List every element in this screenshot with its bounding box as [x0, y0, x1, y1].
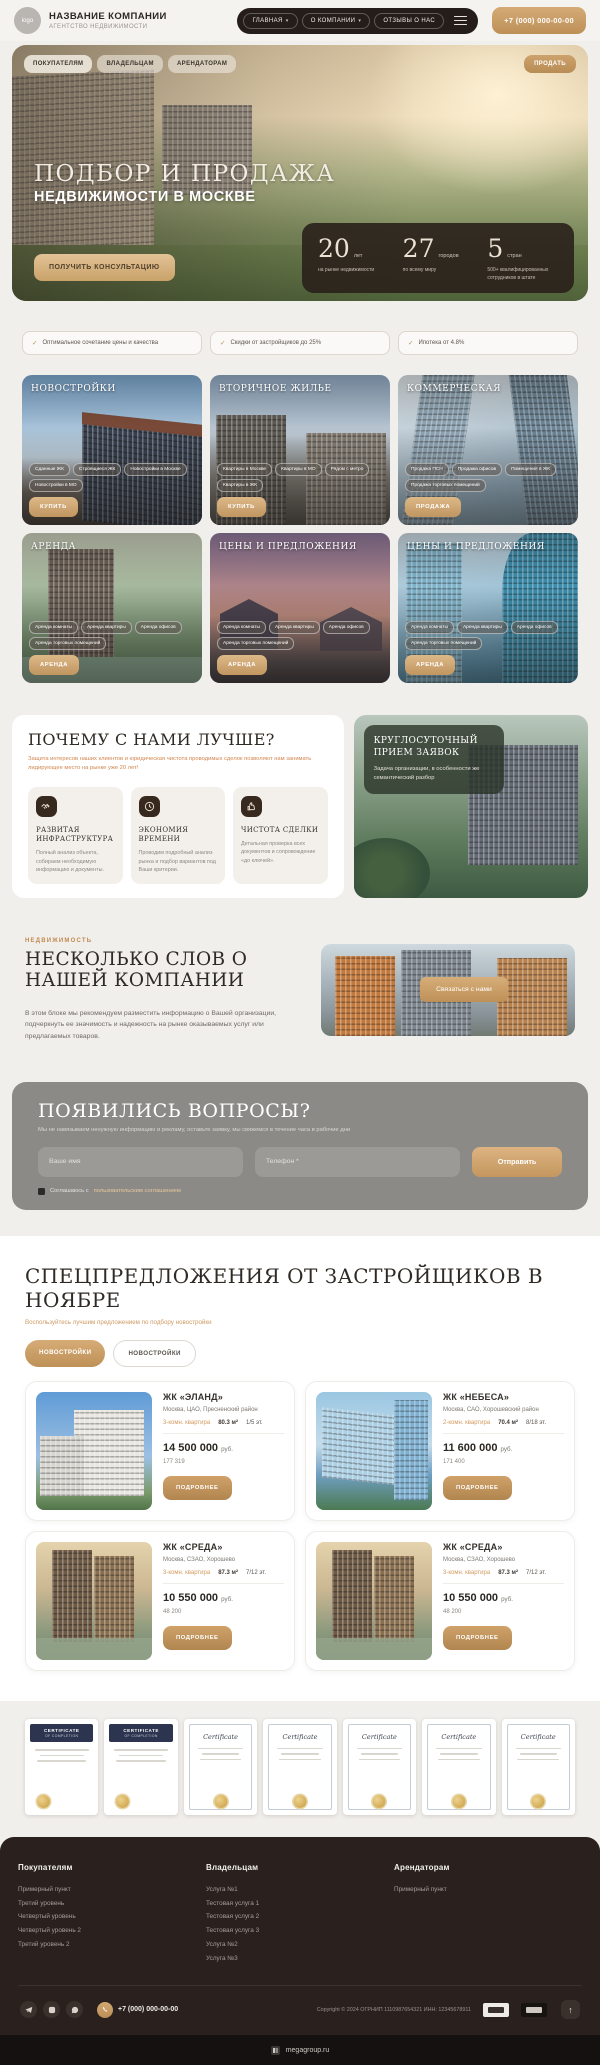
- consent-row: Соглашаюсь с пользовательским соглашение…: [38, 1188, 562, 1195]
- category-action-button[interactable]: КУПИТЬ: [29, 497, 78, 517]
- offer-details-button[interactable]: ПОДРОБНЕЕ: [443, 1476, 512, 1500]
- submit-button[interactable]: Отправить: [472, 1147, 562, 1177]
- category-tags: Аренда комнаты Аренда квартиры Аренда оф…: [405, 621, 571, 650]
- offers-title: СПЕЦПРЕДЛОЖЕНИЯ ОТ ЗАСТРОЙЩИКОВ В НОЯБРЕ: [25, 1264, 575, 1312]
- company-block: НАЗВАНИЕ КОМПАНИИ АГЕНТСТВО НЕДВИЖИМОСТИ: [49, 11, 167, 30]
- usp-badge: ✓Скидки от застройщиков до 25%: [210, 331, 390, 355]
- stat-value: 5: [487, 236, 503, 261]
- about-section: НЕДВИЖИМОСТЬ НЕСКОЛЬКО СЛОВ О НАШЕЙ КОМП…: [25, 938, 575, 1042]
- offer-body: ЖК «НЕБЕСА» Москва, САО, Хорошевский рай…: [443, 1392, 564, 1510]
- offer-card-nebesa[interactable]: ЖК «НЕБЕСА» Москва, САО, Хорошевский рай…: [305, 1381, 575, 1521]
- offer-price: 11 600 000 руб.: [443, 1442, 564, 1454]
- offer-area: 87.3 м²: [218, 1570, 238, 1576]
- certificate-title: Certificate: [273, 1733, 326, 1741]
- category-tag[interactable]: Продажа офисов: [452, 463, 502, 476]
- offer-floor: 7/12 эт.: [246, 1570, 266, 1576]
- category-tag[interactable]: Аренда комнаты: [405, 621, 454, 634]
- feature-text: Детальная проверка всех документов и соп…: [241, 840, 320, 865]
- category-tag[interactable]: Аренда торговых помещений: [217, 637, 294, 650]
- footer-link[interactable]: Третий уровень 2: [18, 1938, 206, 1952]
- offer-currency: руб.: [501, 1446, 513, 1453]
- category-title: КОММЕРЧЕСКАЯ: [407, 384, 570, 394]
- stat-unit: стран: [507, 253, 521, 259]
- builder-brand[interactable]: megagroup.ru: [286, 2047, 330, 2054]
- footer-columns: Покупателям Примерный пункт Третий урове…: [18, 1863, 582, 1966]
- offer-details-button[interactable]: ПОДРОБНЕЕ: [163, 1626, 232, 1650]
- award-badge: [521, 2003, 547, 2017]
- check-icon: ✓: [220, 339, 225, 347]
- subnav-tenants[interactable]: АРЕНДАТОРАМ: [168, 55, 236, 73]
- category-tag[interactable]: Аренда квартиры: [457, 621, 508, 634]
- offer-image: [316, 1392, 432, 1510]
- feature-text: Полный анализ объекта, собираем необходи…: [36, 849, 115, 874]
- telegram-icon[interactable]: [20, 2001, 37, 2018]
- gold-seal-icon: [452, 1795, 465, 1808]
- footer-link[interactable]: Примерный пункт: [394, 1883, 582, 1897]
- nav-item-home[interactable]: ГЛАВНАЯ▾: [243, 13, 297, 29]
- form-title: ПОЯВИЛИСЬ ВОПРОСЫ?: [38, 1100, 562, 1122]
- about-text-block: НЕДВИЖИМОСТЬ НЕСКОЛЬКО СЛОВ О НАШЕЙ КОМП…: [25, 938, 305, 1042]
- logo-text: logo: [22, 18, 33, 24]
- footer-column-title: Покупателям: [18, 1863, 206, 1872]
- footer-phone[interactable]: +7 (000) 000-00-00: [97, 2002, 178, 2018]
- site-footer: Покупателям Примерный пункт Третий урове…: [0, 1837, 600, 2036]
- promo-text: Задача организации, в особенности же сем…: [374, 765, 495, 783]
- usp-badge-label: Оптимальное сочетание цены и качества: [42, 340, 158, 346]
- category-card-novostroyki[interactable]: НОВОСТРОЙКИ Сданные ЖК Строящиеся ЖК Нов…: [22, 375, 202, 525]
- offer-currency: руб.: [221, 1446, 233, 1453]
- copyright-text: Copyright © 2024 ОГРНИП 1110987654321 ИН…: [317, 2006, 471, 2014]
- handshake-icon: [36, 796, 57, 817]
- certificate-thumbnail[interactable]: CERTIFICATEOF COMPLETION: [25, 1719, 98, 1815]
- certificates-strip: CERTIFICATEOF COMPLETION CERTIFICATEOF C…: [25, 1719, 575, 1815]
- stat-years: 20лет на рынке недвижимости: [318, 236, 389, 282]
- category-tag[interactable]: Аренда офисов: [323, 621, 370, 634]
- chevron-down-icon: ▾: [358, 18, 361, 24]
- footer-link[interactable]: Тестовая услуга 3: [206, 1924, 394, 1938]
- footer-column-tenants: Арендаторам Примерный пункт: [394, 1863, 582, 1966]
- certificate-title: Certificate: [353, 1733, 406, 1741]
- phone-icon: [97, 2002, 113, 2018]
- certificate-title: Certificate: [432, 1733, 485, 1741]
- offer-rooms: 3-комн. квартира: [163, 1570, 210, 1576]
- offers-tabs: НОВОСТРОЙКИ НОВОСТРОЙКИ: [25, 1340, 575, 1367]
- usp-badge: ✓Оптимальное сочетание цены и качества: [22, 331, 202, 355]
- category-tag[interactable]: Аренда офисов: [511, 621, 558, 634]
- category-tags: Продажа ПСН Продажа офисов Помещения в Ж…: [405, 463, 571, 492]
- stat-caption: 500+ квалифицированных сотрудников в шта…: [487, 267, 558, 282]
- footer-bottom-bar: +7 (000) 000-00-00 Copyright © 2024 ОГРН…: [18, 1986, 582, 2035]
- consent-link[interactable]: пользовательским соглашением: [94, 1188, 181, 1194]
- category-tag[interactable]: Рядом с метро: [325, 463, 370, 476]
- thumbs-up-icon: [241, 796, 262, 817]
- tab-novostroyki-active[interactable]: НОВОСТРОЙКИ: [25, 1340, 105, 1367]
- certificate-thumbnail[interactable]: CERTIFICATEOF COMPLETION: [104, 1719, 177, 1815]
- hero-stats-panel: 20лет на рынке недвижимости 27городов по…: [302, 223, 574, 293]
- features: РАЗВИТАЯ ИНФРАСТРУКТУРА Полный анализ об…: [28, 787, 328, 884]
- category-tag[interactable]: Помещения в ЖК: [505, 463, 556, 476]
- main-nav: ГЛАВНАЯ▾ О КОМПАНИИ▾ ОТЗЫВЫ О НАС: [237, 8, 478, 34]
- subnav-buyers[interactable]: ПОКУПАТЕЛЯМ: [24, 55, 92, 73]
- company-tagline: АГЕНТСТВО НЕДВИЖИМОСТИ: [49, 24, 167, 30]
- category-title: ВТОРИЧНОЕ ЖИЛЬЕ: [219, 384, 382, 394]
- category-tag[interactable]: Аренда торговых помещений: [29, 637, 106, 650]
- footer-link[interactable]: Услуга №2: [206, 1938, 394, 1952]
- category-tag[interactable]: Строящиеся ЖК: [73, 463, 121, 476]
- certificate-thumbnail[interactable]: Certificate: [422, 1719, 495, 1815]
- nav-item-label: ГЛАВНАЯ: [252, 18, 282, 24]
- tab-novostroyki[interactable]: НОВОСТРОЙКИ: [113, 1340, 195, 1367]
- category-action-button[interactable]: АРЕНДА: [217, 655, 267, 675]
- offer-price-per-m: 48 200: [443, 1609, 564, 1615]
- category-tag[interactable]: Сданные ЖК: [29, 463, 70, 476]
- gold-seal-icon: [37, 1795, 50, 1808]
- hero-title-line2: НЕДВИЖИМОСТИ В МОСКВЕ: [34, 189, 335, 205]
- certificate-thumbnail[interactable]: Certificate: [502, 1719, 575, 1815]
- offer-name: ЖК «ЭЛАНД»: [163, 1392, 284, 1402]
- offer-price-per-m: 48 200: [163, 1609, 284, 1615]
- certificate-title: Certificate: [194, 1733, 247, 1741]
- nav-item-label: ОТЗЫВЫ О НАС: [383, 18, 435, 24]
- offer-area: 80.3 м²: [218, 1420, 238, 1426]
- footer-link[interactable]: Третий уровень: [18, 1897, 206, 1911]
- logo[interactable]: logo: [14, 7, 41, 34]
- footer-link[interactable]: Примерный пункт: [18, 1883, 206, 1897]
- offer-image: [36, 1392, 152, 1510]
- certificate-thumbnail[interactable]: Certificate: [343, 1719, 416, 1815]
- hero-title-line1: ПОДБОР И ПРОДАЖА: [34, 161, 335, 187]
- category-title: АРЕНДА: [31, 542, 194, 552]
- scroll-to-top-button[interactable]: ↑: [561, 2000, 580, 2019]
- offer-body: ЖК «СРЕДА» Москва, СЗАО, Хорошево 3-комн…: [163, 1542, 284, 1660]
- promo-overlay: КРУГЛОСУТОЧНЫЙ ПРИЕМ ЗАЯВОК Задача орган…: [364, 725, 505, 794]
- about-title: НЕСКОЛЬКО СЛОВ О НАШЕЙ КОМПАНИИ: [25, 949, 305, 993]
- footer-link[interactable]: Тестовая услуга 1: [206, 1897, 394, 1911]
- offers-subtitle: Воспользуйтесь лучшим предложением по по…: [25, 1319, 575, 1326]
- why-title: ПОЧЕМУ С НАМИ ЛУЧШЕ?: [28, 730, 328, 749]
- check-icon: ✓: [32, 339, 37, 347]
- about-paragraph: В этом блоке мы рекомендуем разместить и…: [25, 1008, 291, 1042]
- offer-image: [316, 1542, 432, 1660]
- offer-floor: 1/5 эт.: [246, 1420, 263, 1426]
- feature-title: РАЗВИТАЯ ИНФРАСТРУКТУРА: [36, 826, 115, 845]
- offer-card-sreda-2[interactable]: ЖК «СРЕДА» Москва, СЗАО, Хорошево 3-комн…: [305, 1531, 575, 1671]
- certificate-thumbnail[interactable]: Certificate: [263, 1719, 336, 1815]
- footer-phone-number: +7 (000) 000-00-00: [118, 2006, 178, 2013]
- offer-body: ЖК «СРЕДА» Москва, СЗАО, Хорошево 3-комн…: [443, 1542, 564, 1660]
- offer-card-sreda-1[interactable]: ЖК «СРЕДА» Москва, СЗАО, Хорошево 3-комн…: [25, 1531, 295, 1671]
- category-tag[interactable]: Продажа ПСН: [405, 463, 449, 476]
- gold-seal-icon: [116, 1795, 129, 1808]
- nav-item-label: О КОМПАНИИ: [311, 18, 356, 24]
- category-action-button[interactable]: КУПИТЬ: [217, 497, 266, 517]
- category-title: ЦЕНЫ И ПРЕДЛОЖЕНИЯ: [219, 542, 382, 552]
- offer-floor: 8/18 эт.: [526, 1420, 546, 1426]
- offer-name: ЖК «СРЕДА»: [163, 1542, 284, 1552]
- stat-value: 27: [403, 236, 435, 261]
- whatsapp-icon[interactable]: [66, 2001, 83, 2018]
- sell-button[interactable]: ПРОДАТЬ: [524, 55, 576, 73]
- gold-seal-icon: [293, 1795, 306, 1808]
- footer-column-buyers: Покупателям Примерный пункт Третий урове…: [18, 1863, 206, 1966]
- footer-link[interactable]: Тестовая услуга 2: [206, 1910, 394, 1924]
- footer-column-title: Владельцам: [206, 1863, 394, 1872]
- offer-floor: 7/12 эт.: [526, 1570, 546, 1576]
- category-card-commercial[interactable]: КОММЕРЧЕСКАЯ Продажа ПСН Продажа офисов …: [398, 375, 578, 525]
- footer-link[interactable]: Услуга №1: [206, 1883, 394, 1897]
- footer-link[interactable]: Четвертый уровень: [18, 1910, 206, 1924]
- category-grid: НОВОСТРОЙКИ Сданные ЖК Строящиеся ЖК Нов…: [22, 375, 578, 683]
- offer-price: 14 500 000 руб.: [163, 1442, 284, 1454]
- category-action-button[interactable]: ПРОДАЖА: [405, 497, 461, 517]
- certificate-title: CERTIFICATE: [32, 1728, 91, 1733]
- site-builder-bar: megagroup.ru: [0, 2035, 600, 2065]
- stat-cities: 27городов по всему миру: [403, 236, 474, 282]
- certificate-title: Certificate: [512, 1733, 565, 1741]
- offer-price-per-m: 171 400: [443, 1459, 564, 1465]
- name-input[interactable]: [38, 1147, 243, 1177]
- footer-link[interactable]: Услуга №3: [206, 1952, 394, 1966]
- why-subtitle: Защита интересов наших клиентов и юридич…: [28, 755, 316, 774]
- stat-countries: 5стран 500+ квалифицированных сотруднико…: [487, 236, 558, 282]
- certificate-thumbnail[interactable]: Certificate: [184, 1719, 257, 1815]
- offer-rooms: 2-комн. квартира: [443, 1420, 490, 1426]
- footer-link[interactable]: Четвертый уровень 2: [18, 1924, 206, 1938]
- stat-value: 20: [318, 236, 350, 261]
- why-card: ПОЧЕМУ С НАМИ ЛУЧШЕ? Защита интересов на…: [12, 715, 344, 898]
- usp-badges: ✓Оптимальное сочетание цены и качества ✓…: [22, 331, 578, 355]
- gold-seal-icon: [214, 1795, 227, 1808]
- form-subtitle: Мы не навязываем ненужную информацию и р…: [38, 1127, 562, 1133]
- category-action-button[interactable]: АРЕНДА: [29, 655, 79, 675]
- offer-rooms: 3-комн. квартира: [443, 1570, 490, 1576]
- offer-details-button[interactable]: ПОДРОБНЕЕ: [443, 1626, 512, 1650]
- offer-currency: руб.: [501, 1596, 513, 1603]
- hero-subnav: ПОКУПАТЕЛЯМ ВЛАДЕЛЬЦАМ АРЕНДАТОРАМ ПРОДА…: [24, 55, 576, 73]
- category-card-prices-1[interactable]: ЦЕНЫ И ПРЕДЛОЖЕНИЯ Аренда комнаты Аренда…: [210, 533, 390, 683]
- about-image: Связаться с нами: [321, 944, 575, 1036]
- gold-seal-icon: [373, 1795, 386, 1808]
- category-card-secondary[interactable]: ВТОРИЧНОЕ ЖИЛЬЕ Квартиры в Москве Кварти…: [210, 375, 390, 525]
- category-card-arenda[interactable]: АРЕНДА Аренда комнаты Аренда квартиры Ар…: [22, 533, 202, 683]
- category-tags: Квартиры в Москве Квартиры в МО Рядом с …: [217, 463, 383, 492]
- company-name: НАЗВАНИЕ КОМПАНИИ: [49, 11, 167, 22]
- certificate-subtitle: OF COMPLETION: [32, 1734, 91, 1738]
- subnav-owners[interactable]: ВЛАДЕЛЬЦАМ: [97, 55, 162, 73]
- stat-unit: городов: [438, 253, 458, 259]
- category-tag[interactable]: Квартиры в Москве: [217, 463, 272, 476]
- offer-location: Москва, СЗАО, Хорошево: [163, 1557, 284, 1563]
- offer-name: ЖК «НЕБЕСА»: [443, 1392, 564, 1402]
- category-title: НОВОСТРОЙКИ: [31, 384, 194, 394]
- category-tag[interactable]: Аренда торговых помещений: [405, 637, 482, 650]
- offer-location: Москва, ЦАО, Пресненский район: [163, 1407, 284, 1413]
- offer-specs: 3-комн. квартира 87.3 м² 7/12 эт.: [443, 1570, 564, 1584]
- certificate-title: CERTIFICATE: [111, 1728, 170, 1733]
- category-action-button[interactable]: АРЕНДА: [405, 655, 455, 675]
- why-section: ПОЧЕМУ С НАМИ ЛУЧШЕ? Защита интересов на…: [12, 715, 588, 898]
- feature-clean-deal: ЧИСТОТА СДЕЛКИ Детальная проверка всех д…: [233, 787, 328, 884]
- feature-title: ЧИСТОТА СДЕЛКИ: [241, 826, 320, 835]
- gold-seal-icon: [532, 1795, 545, 1808]
- category-tag[interactable]: Новостройки в Москве: [124, 463, 186, 476]
- offer-image: [36, 1542, 152, 1660]
- site-header: logo НАЗВАНИЕ КОМПАНИИ АГЕНТСТВО НЕДВИЖИ…: [0, 0, 600, 41]
- footer-column-title: Арендаторам: [394, 1863, 582, 1872]
- feature-text: Проводим подробный анализ рынка и подбор…: [139, 849, 218, 874]
- category-card-prices-2[interactable]: ЦЕНЫ И ПРЕДЛОЖЕНИЯ Аренда комнаты Аренда…: [398, 533, 578, 683]
- offer-price: 10 550 000 руб.: [443, 1592, 564, 1604]
- offer-details-button[interactable]: ПОДРОБНЕЕ: [163, 1476, 232, 1500]
- category-tags: Аренда комнаты Аренда квартиры Аренда оф…: [217, 621, 383, 650]
- consultation-button[interactable]: ПОЛУЧИТЬ КОНСУЛЬТАЦИЮ: [34, 254, 175, 281]
- phone-input[interactable]: [255, 1147, 460, 1177]
- check-icon: ✓: [408, 339, 413, 347]
- category-tag[interactable]: Аренда комнаты: [217, 621, 266, 634]
- feature-title: ЭКОНОМИЯ ВРЕМЕНИ: [139, 826, 218, 845]
- stat-caption: на рынке недвижимости: [318, 267, 389, 275]
- offer-price-per-m: 177 319: [163, 1459, 284, 1465]
- nav-item-about[interactable]: О КОМПАНИИ▾: [302, 13, 371, 29]
- nav-item-reviews[interactable]: ОТЗЫВЫ О НАС: [374, 13, 444, 29]
- category-tag[interactable]: Продажа торговых помещений: [405, 479, 486, 492]
- stat-unit: лет: [354, 253, 363, 259]
- offers-section: СПЕЦПРЕДЛОЖЕНИЯ ОТ ЗАСТРОЙЩИКОВ В НОЯБРЕ…: [0, 1236, 600, 1701]
- questions-form: ПОЯВИЛИСЬ ВОПРОСЫ? Мы не навязываем нену…: [12, 1082, 588, 1210]
- offer-specs: 3-комн. квартира 87.3 м² 7/12 эт.: [163, 1570, 284, 1584]
- promo-image-card: КРУГЛОСУТОЧНЫЙ ПРИЕМ ЗАЯВОК Задача орган…: [354, 715, 588, 898]
- feature-infrastructure: РАЗВИТАЯ ИНФРАСТРУКТУРА Полный анализ об…: [28, 787, 123, 884]
- hero-title: ПОДБОР И ПРОДАЖА НЕДВИЖИМОСТИ В МОСКВЕ: [34, 161, 335, 205]
- certificate-subtitle: OF COMPLETION: [111, 1734, 170, 1738]
- category-title: ЦЕНЫ И ПРЕДЛОЖЕНИЯ: [407, 542, 570, 552]
- hero-banner: ПОКУПАТЕЛЯМ ВЛАДЕЛЬЦАМ АРЕНДАТОРАМ ПРОДА…: [12, 45, 588, 301]
- about-eyebrow: НЕДВИЖИМОСТЬ: [25, 938, 305, 944]
- offer-name: ЖК «СРЕДА»: [443, 1542, 564, 1552]
- category-tag[interactable]: Аренда комнаты: [29, 621, 78, 634]
- offer-currency: руб.: [221, 1596, 233, 1603]
- category-tag[interactable]: Аренда квартиры: [269, 621, 320, 634]
- menu-icon[interactable]: [454, 16, 467, 25]
- usp-badge-label: Скидки от застройщиков до 25%: [230, 340, 321, 346]
- offer-card-eland[interactable]: ЖК «ЭЛАНД» Москва, ЦАО, Пресненский райо…: [25, 1381, 295, 1521]
- usp-badge: ✓Ипотека от 4.8%: [398, 331, 578, 355]
- promo-title: КРУГЛОСУТОЧНЫЙ ПРИЕМ ЗАЯВОК: [374, 736, 495, 759]
- feature-time: ЭКОНОМИЯ ВРЕМЕНИ Проводим подробный анал…: [131, 787, 226, 884]
- offer-location: Москва, СЗАО, Хорошево: [443, 1557, 564, 1563]
- header-phone-button[interactable]: +7 (000) 000-00-00: [492, 7, 586, 34]
- instagram-icon[interactable]: [43, 2001, 60, 2018]
- category-tag[interactable]: Квартиры в МО: [275, 463, 321, 476]
- footer-column-owners: Владельцам Услуга №1 Тестовая услуга 1 Т…: [206, 1863, 394, 1966]
- offer-body: ЖК «ЭЛАНД» Москва, ЦАО, Пресненский райо…: [163, 1392, 284, 1510]
- offer-rooms: 3-комн. квартира: [163, 1420, 210, 1426]
- chevron-down-icon: ▾: [286, 18, 289, 24]
- form-row: Отправить: [38, 1147, 562, 1177]
- category-tags: Аренда комнаты Аренда квартиры Аренда оф…: [29, 621, 195, 650]
- category-tag[interactable]: Аренда офисов: [135, 621, 182, 634]
- consent-text: Соглашаюсь с: [50, 1188, 89, 1194]
- offer-price: 10 550 000 руб.: [163, 1592, 284, 1604]
- stat-caption: по всему миру: [403, 267, 474, 275]
- offer-area: 70.4 м²: [498, 1420, 518, 1426]
- usp-badge-label: Ипотека от 4.8%: [418, 340, 464, 346]
- offers-grid: ЖК «ЭЛАНД» Москва, ЦАО, Пресненский райо…: [25, 1381, 575, 1671]
- builder-logo-icon: [271, 2046, 280, 2055]
- category-tag[interactable]: Квартиры в ЖК: [217, 479, 263, 492]
- offer-location: Москва, САО, Хорошевский район: [443, 1407, 564, 1413]
- category-tags: Сданные ЖК Строящиеся ЖК Новостройки в М…: [29, 463, 195, 492]
- consent-checkbox[interactable]: [38, 1188, 45, 1195]
- clock-icon: [139, 796, 160, 817]
- offer-specs: 2-комн. квартира 70.4 м² 8/18 эт.: [443, 1420, 564, 1434]
- offer-area: 87.3 м²: [498, 1570, 518, 1576]
- category-tag[interactable]: Аренда квартиры: [81, 621, 132, 634]
- contact-us-button[interactable]: Связаться с нами: [420, 977, 508, 1002]
- category-tag[interactable]: Новостройки в МО: [29, 479, 83, 492]
- award-badge: [483, 2003, 509, 2017]
- offer-specs: 3-комн. квартира 80.3 м² 1/5 эт.: [163, 1420, 284, 1434]
